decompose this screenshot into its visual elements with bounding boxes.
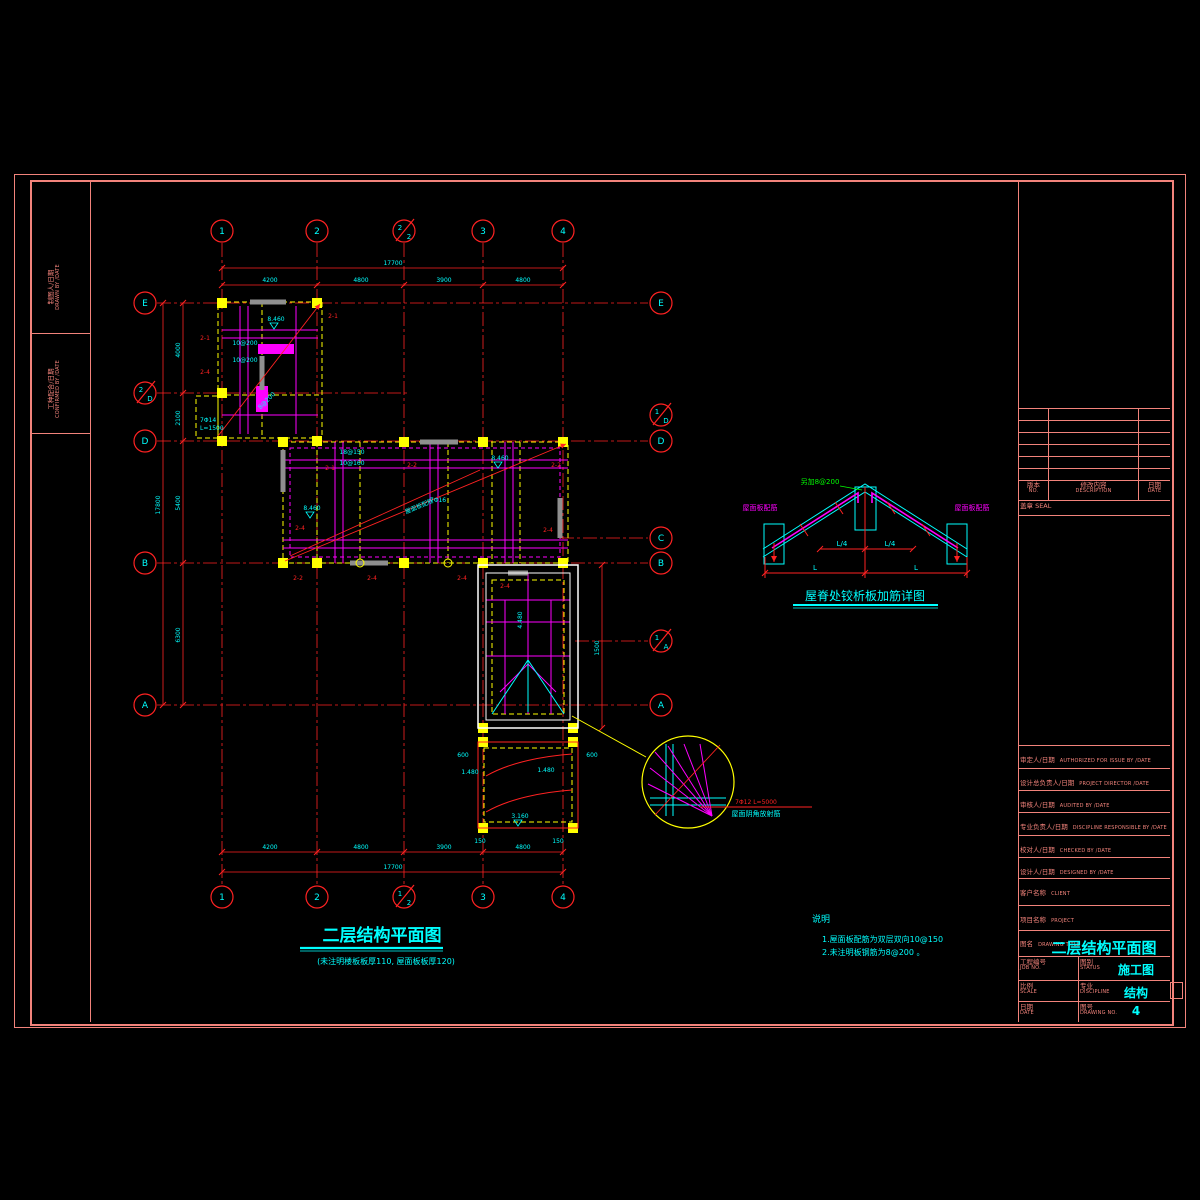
- svg-text:600: 600: [457, 752, 469, 759]
- svg-text:L: L: [914, 564, 918, 572]
- svg-text:2: 2: [407, 899, 411, 907]
- svg-text:10@200: 10@200: [232, 357, 257, 364]
- svg-text:2: 2: [398, 224, 402, 232]
- svg-text:2-4: 2-4: [200, 369, 210, 376]
- svg-text:A: A: [664, 643, 669, 651]
- svg-text:2-4: 2-4: [500, 583, 510, 590]
- svg-text:5400: 5400: [175, 495, 182, 510]
- svg-text:4: 4: [560, 893, 566, 903]
- svg-text:10@200: 10@200: [232, 340, 257, 347]
- svg-text:3.160: 3.160: [511, 813, 528, 820]
- svg-text:L/4: L/4: [837, 540, 848, 548]
- svg-text:A: A: [658, 701, 665, 711]
- axis-bubble-labels-right: E 1 D D C B 1 A A: [655, 299, 669, 711]
- svg-text:E: E: [142, 299, 148, 309]
- ridge-added-bar-label: 另加8@200: [801, 477, 840, 486]
- plan-drawing: 4200 4800 3900 4800 17700 4200 4800 3900…: [0, 0, 1200, 1200]
- svg-text:D: D: [142, 437, 149, 447]
- svg-text:18@150: 18@150: [339, 449, 364, 456]
- svg-text:B: B: [142, 559, 148, 569]
- svg-text:E: E: [658, 299, 664, 309]
- svg-text:4800: 4800: [353, 844, 368, 851]
- svg-text:4: 4: [560, 227, 566, 237]
- axis-bubbles-right: [650, 292, 672, 716]
- svg-text:4.480: 4.480: [517, 611, 524, 628]
- svg-text:1.480: 1.480: [461, 769, 478, 776]
- svg-text:D: D: [658, 437, 665, 447]
- svg-text:4800: 4800: [353, 277, 368, 284]
- svg-text:4800: 4800: [515, 844, 530, 851]
- elevation-labels: 8.460 8.460 8.460 4.480 1.480 1.480 3.16…: [267, 316, 554, 820]
- svg-text:L: L: [813, 564, 817, 572]
- svg-text:2-2: 2-2: [407, 462, 417, 469]
- svg-text:2-4: 2-4: [543, 527, 553, 534]
- rebar-labels: 10@200 10@200 18@150 10@160 7Φ16 8@200 7…: [200, 340, 446, 516]
- svg-text:1: 1: [655, 634, 659, 642]
- slope-diagonals: [218, 304, 566, 561]
- cad-application-canvas: { "colors": { "background": "#000000", "…: [0, 0, 1200, 1200]
- svg-text:4200: 4200: [262, 844, 277, 851]
- svg-text:2-2: 2-2: [293, 575, 303, 582]
- svg-text:L/4: L/4: [885, 540, 896, 548]
- svg-text:2-1: 2-1: [325, 465, 335, 472]
- svg-text:8.460: 8.460: [491, 455, 508, 462]
- svg-text:150: 150: [552, 838, 564, 845]
- svg-text:2-4: 2-4: [367, 575, 377, 582]
- svg-text:3900: 3900: [436, 844, 451, 851]
- axis-bubbles-bottom: [211, 885, 574, 908]
- axis-bubbles-top: [211, 219, 574, 242]
- svg-text:6300: 6300: [175, 627, 182, 642]
- ridge-right-label: 屋面板配筋: [955, 503, 990, 512]
- axis-bubbles-left: [134, 292, 156, 716]
- svg-text:10@160: 10@160: [339, 460, 364, 467]
- plan-subtitle: (未注明楼板板厚110, 屋面板板厚120): [317, 956, 455, 966]
- svg-text:1.480: 1.480: [537, 767, 554, 774]
- svg-text:7Φ14: 7Φ14: [200, 417, 216, 424]
- svg-text:2-1: 2-1: [328, 313, 338, 320]
- svg-text:17700: 17700: [383, 864, 402, 871]
- svg-text:2100: 2100: [175, 410, 182, 425]
- notes-heading: 说明: [812, 913, 830, 925]
- svg-text:D: D: [663, 417, 668, 425]
- svg-text:3: 3: [480, 893, 486, 903]
- svg-text:4800: 4800: [515, 277, 530, 284]
- svg-text:2: 2: [139, 386, 143, 394]
- svg-text:1: 1: [219, 227, 225, 237]
- rebar-lines: [222, 306, 570, 714]
- svg-text:8.460: 8.460: [303, 505, 320, 512]
- svg-text:4000: 4000: [175, 342, 182, 357]
- dimension-lines: [163, 268, 602, 872]
- svg-text:2: 2: [314, 893, 320, 903]
- svg-text:2-1: 2-1: [200, 335, 210, 342]
- svg-text:2-4: 2-4: [457, 575, 467, 582]
- corner-detail-name-label: 屋面阴角放射筋: [732, 809, 781, 818]
- svg-text:1500: 1500: [594, 640, 601, 655]
- notes-item-1: 1.屋面板配筋为双层双向10@150: [822, 934, 943, 944]
- svg-text:150: 150: [474, 838, 486, 845]
- svg-text:17800: 17800: [155, 495, 162, 514]
- svg-text:C: C: [658, 534, 664, 544]
- svg-text:L=1500: L=1500: [200, 425, 224, 432]
- svg-text:1: 1: [219, 893, 225, 903]
- svg-text:A: A: [142, 701, 149, 711]
- notes-item-2: 2.未注明板钢筋为8@200 。: [822, 947, 925, 957]
- svg-text:2: 2: [314, 227, 320, 237]
- corner-detail-bubble: 7Φ12 L=5000 屋面阴角放射筋: [572, 716, 812, 828]
- ridge-detail: 另加8@200 屋面板配筋 屋面板配筋 L/4 L/4 L L 屋脊处铰析板加筋…: [743, 477, 990, 608]
- tower-hip-lines: [492, 660, 564, 714]
- ridge-detail-title: 屋脊处铰析板加筋详图: [805, 588, 925, 603]
- svg-text:D: D: [147, 395, 152, 403]
- svg-text:3: 3: [480, 227, 486, 237]
- svg-text:1: 1: [398, 890, 402, 898]
- svg-text:1: 1: [655, 408, 659, 416]
- dimension-ticks: [160, 265, 605, 875]
- svg-text:4200: 4200: [262, 277, 277, 284]
- svg-text:B: B: [658, 559, 664, 569]
- plan-title-group: 二层结构平面图 (未注明楼板板厚110, 屋面板板厚120): [300, 925, 455, 966]
- svg-text:600: 600: [586, 752, 598, 759]
- ridge-left-label: 屋面板配筋: [743, 503, 778, 512]
- plan-title: 二层结构平面图: [323, 925, 442, 946]
- svg-text:2-2: 2-2: [551, 462, 561, 469]
- svg-text:17700: 17700: [383, 260, 402, 267]
- notes-group: 说明 1.屋面板配筋为双层双向10@150 2.未注明板钢筋为8@200 。: [812, 913, 943, 957]
- corner-detail-bar-label: 7Φ12 L=5000: [735, 799, 777, 806]
- svg-text:2: 2: [407, 233, 411, 241]
- svg-text:2-4: 2-4: [295, 525, 305, 532]
- svg-text:3900: 3900: [436, 277, 451, 284]
- axis-bubble-labels-left: E 2 D D B A: [139, 299, 153, 711]
- svg-text:8.460: 8.460: [267, 316, 284, 323]
